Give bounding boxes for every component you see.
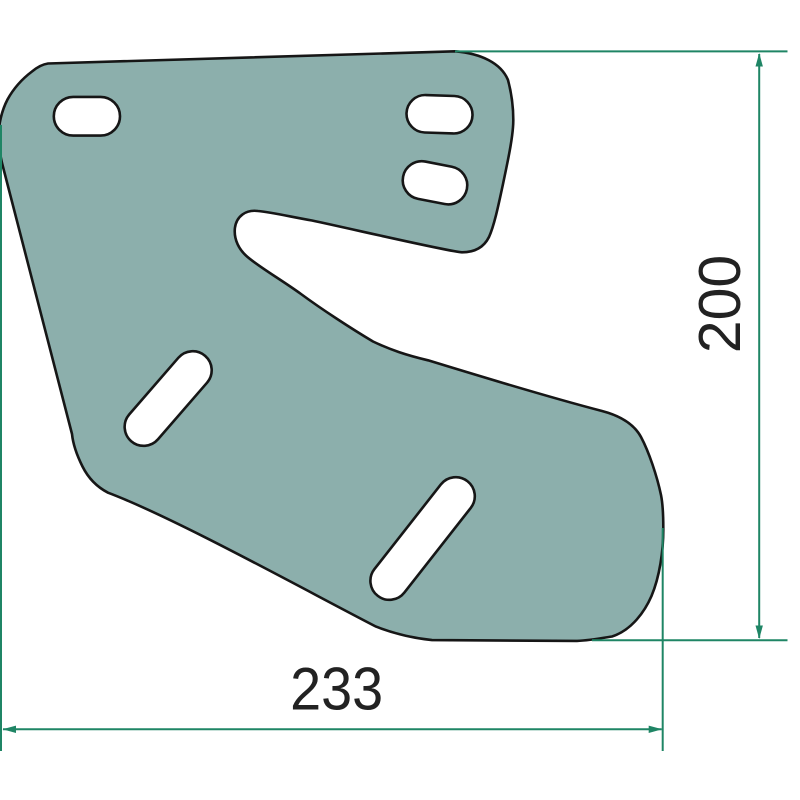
svg-text:200: 200 bbox=[687, 255, 753, 353]
svg-text:233: 233 bbox=[290, 655, 383, 722]
